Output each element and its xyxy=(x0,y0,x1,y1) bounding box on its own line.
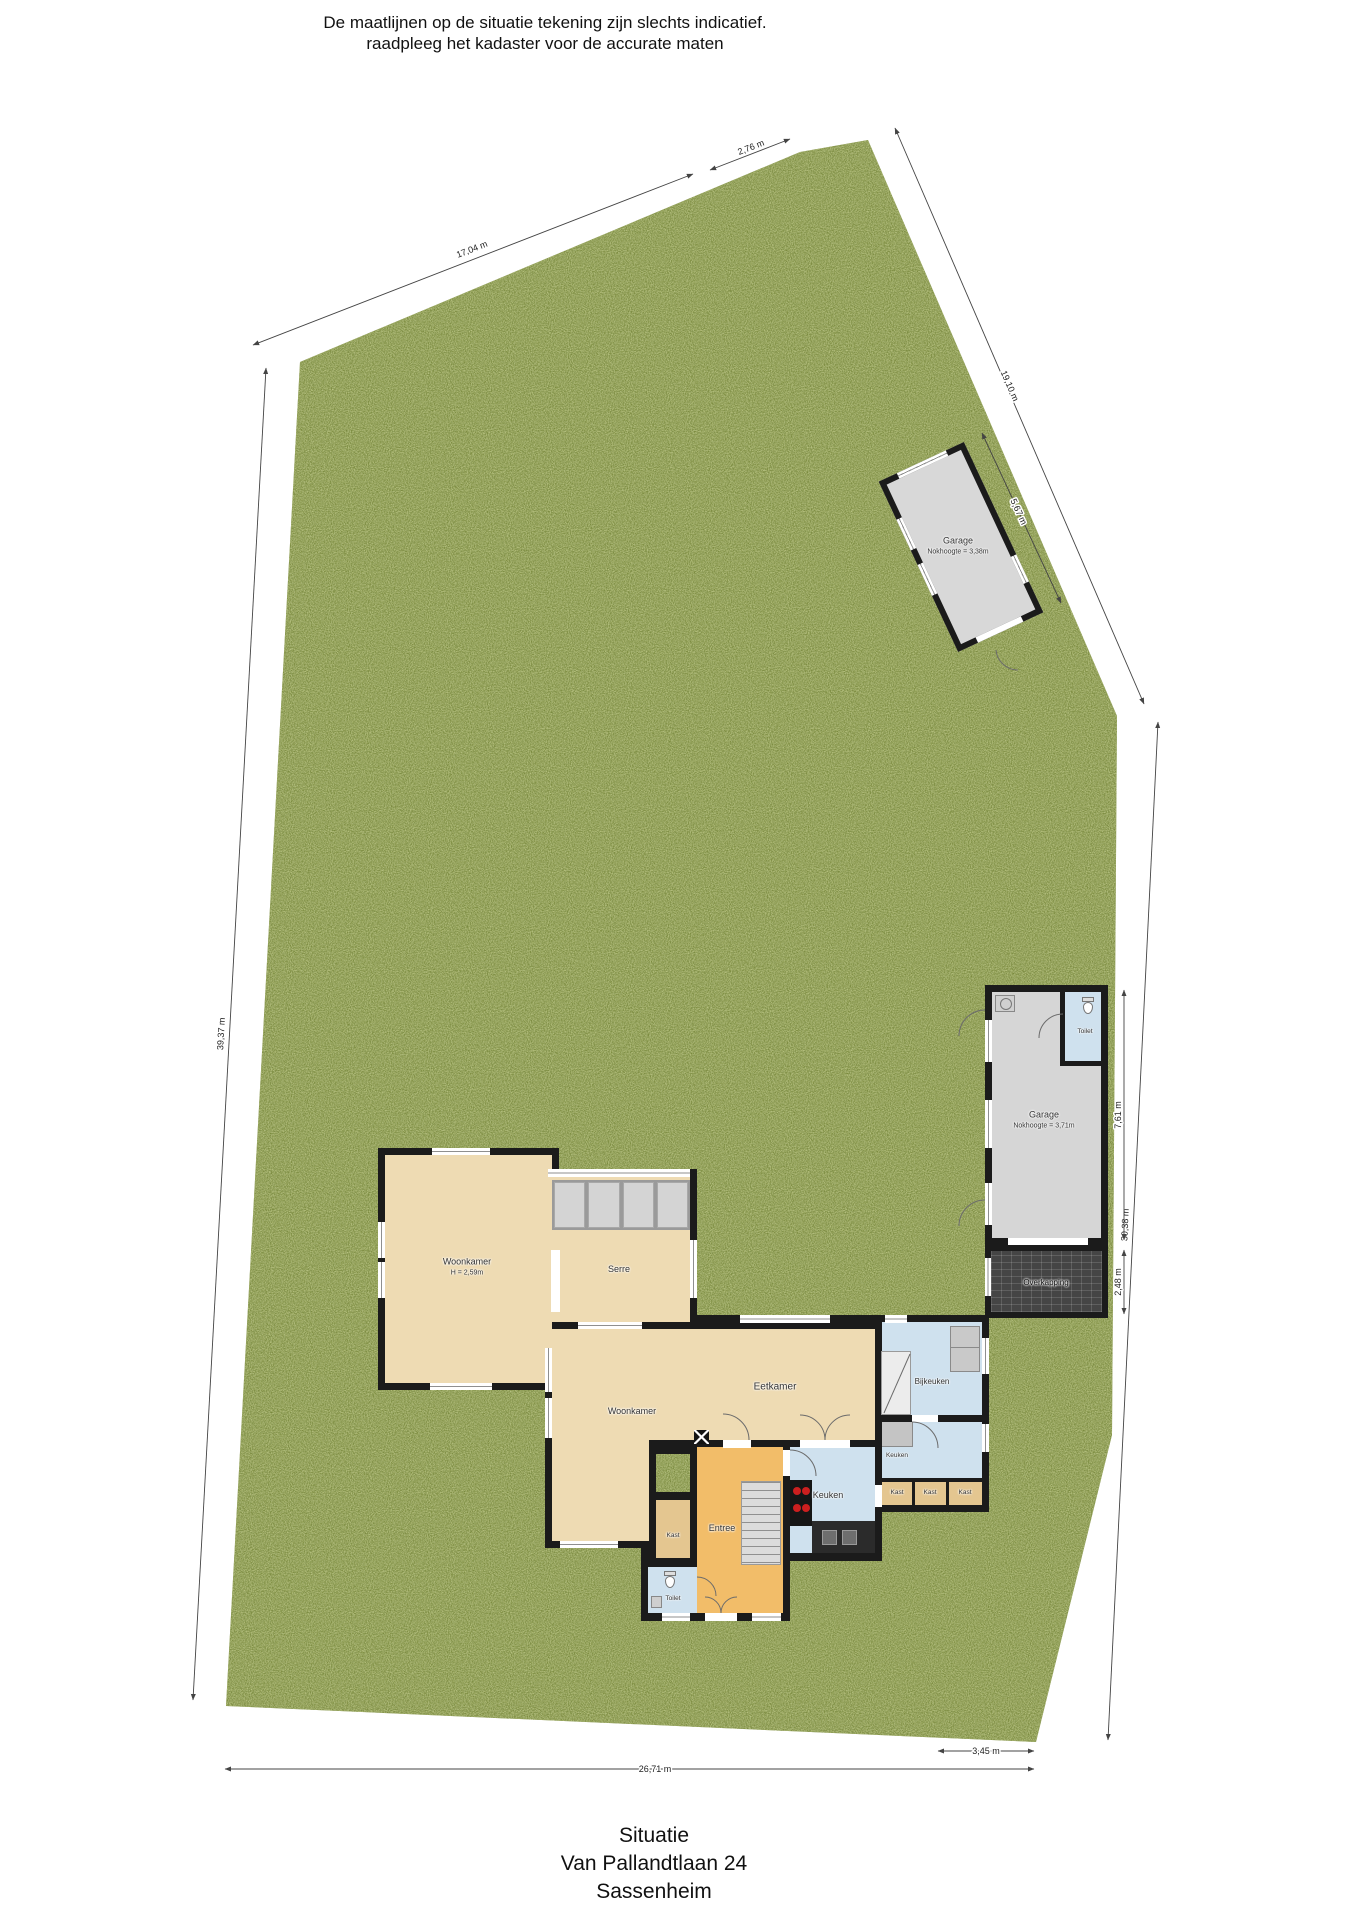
stove-icon xyxy=(790,1480,812,1526)
roof-panel xyxy=(588,1182,619,1228)
toilet-icon xyxy=(1081,997,1095,1015)
window xyxy=(690,1240,697,1298)
room-label-toilet: Toilet xyxy=(665,1595,680,1603)
dimension-label-garage-height: 7,61 m xyxy=(1113,1101,1123,1129)
stairs-entree xyxy=(742,1482,780,1564)
dimension-label-bottom-right: 3,45 m xyxy=(972,1746,1000,1756)
door-opening xyxy=(875,1485,882,1507)
window xyxy=(545,1398,552,1438)
dimension-label-left-edge: 39,37 m xyxy=(215,1017,227,1050)
room-label-woonkamer-nw: Woonkamer H = 2,59m xyxy=(443,1257,491,1278)
room-label-garage-right: Garage Nokhoogte = 3,71m xyxy=(1013,1110,1074,1131)
window xyxy=(378,1222,385,1258)
window xyxy=(548,1169,690,1177)
room-label-serre: Serre xyxy=(608,1264,630,1276)
room-woonkamer-extension xyxy=(552,1440,649,1541)
room-label-keuken: Keuken xyxy=(813,1490,844,1502)
footer-title: Situatie Van Pallandtlaan 24 Sassenheim xyxy=(561,1822,747,1906)
sink-icon xyxy=(651,1596,662,1608)
footer-line3: Sassenheim xyxy=(561,1878,747,1906)
room-label-garage-upper: Garage Nokhoogte = 3,38m xyxy=(927,536,988,557)
dimension-label-bottom-edge: 26,71 m xyxy=(639,1764,672,1774)
door-opening xyxy=(723,1440,751,1448)
room-label-eetkamer: Eetkamer xyxy=(754,1381,797,1394)
fridge-icon xyxy=(950,1326,980,1372)
room-label-kast-3: Kast xyxy=(958,1489,971,1497)
window xyxy=(578,1322,642,1329)
roof-panel xyxy=(623,1182,654,1228)
pantry-counter xyxy=(882,1422,913,1447)
window xyxy=(982,1424,989,1452)
window xyxy=(985,1183,992,1225)
roof-panel xyxy=(554,1182,585,1228)
room-label-kast-1: Kast xyxy=(890,1489,903,1497)
window xyxy=(982,1338,989,1374)
room-eetkamer-woonkamer xyxy=(552,1329,875,1440)
room-label-kast-hal: Kast xyxy=(666,1532,679,1540)
room-label-kast-2: Kast xyxy=(923,1489,936,1497)
sink-icon xyxy=(822,1530,837,1545)
sink-icon xyxy=(842,1530,857,1545)
kitchen-counter xyxy=(812,1521,875,1553)
window xyxy=(430,1383,492,1390)
window xyxy=(560,1541,618,1548)
room-label-garage-toilet: Toilet xyxy=(1077,1028,1092,1036)
garage-door-opening xyxy=(1008,1238,1088,1245)
washing-machine-icon xyxy=(995,995,1015,1012)
room-label-keuken-pantry: Keuken xyxy=(886,1452,908,1460)
door-opening xyxy=(912,1415,938,1422)
window xyxy=(752,1613,781,1621)
room-label-woonkamer: Woonkamer xyxy=(608,1406,656,1418)
dimension-label-top-left-long: 17,04 m xyxy=(455,239,489,260)
window xyxy=(545,1348,552,1392)
window xyxy=(885,1315,907,1323)
roof-panel xyxy=(657,1182,688,1228)
door-opening xyxy=(705,1613,737,1621)
stairs-bijkeuken xyxy=(882,1352,910,1414)
window xyxy=(432,1148,490,1155)
situatie-plan: De maatlijnen op de situatie tekening zi… xyxy=(0,0,1358,1920)
toilet-icon xyxy=(663,1571,677,1589)
plot-layer: 17,04 m 2,76 m 19,10 m 5,67 m 39,37 m 30… xyxy=(0,0,1358,1920)
door-opening xyxy=(800,1440,850,1448)
window xyxy=(740,1315,830,1323)
room-label-entree: Entree xyxy=(709,1523,736,1535)
disclaimer-line2: raadpleeg het kadaster voor de accurate … xyxy=(323,33,766,54)
disclaimer: De maatlijnen op de situatie tekening zi… xyxy=(323,12,766,54)
dimension-label-right-edge: 30,38 m xyxy=(1119,1208,1131,1241)
dimension-label-top-right-long: 19,10 m xyxy=(999,369,1021,403)
door-opening xyxy=(783,1450,790,1476)
window xyxy=(985,1020,992,1062)
passage-opening xyxy=(551,1250,560,1312)
disclaimer-line1: De maatlijnen op de situatie tekening zi… xyxy=(323,12,766,33)
window xyxy=(378,1262,385,1298)
window xyxy=(985,1258,991,1296)
room-kast-hal xyxy=(656,1500,690,1558)
dimension-label-overkapping-height: 2,48 m xyxy=(1113,1268,1123,1296)
window xyxy=(662,1613,690,1621)
window xyxy=(985,1100,992,1148)
room-label-overkapping: Overkapping xyxy=(1023,1278,1068,1288)
footer-line1: Situatie xyxy=(561,1822,747,1850)
room-label-bijkeuken: Bijkeuken xyxy=(915,1377,950,1387)
footer-line2: Van Pallandtlaan 24 xyxy=(561,1850,747,1878)
flue-icon xyxy=(694,1430,709,1444)
serre-roof-panels xyxy=(552,1180,690,1230)
